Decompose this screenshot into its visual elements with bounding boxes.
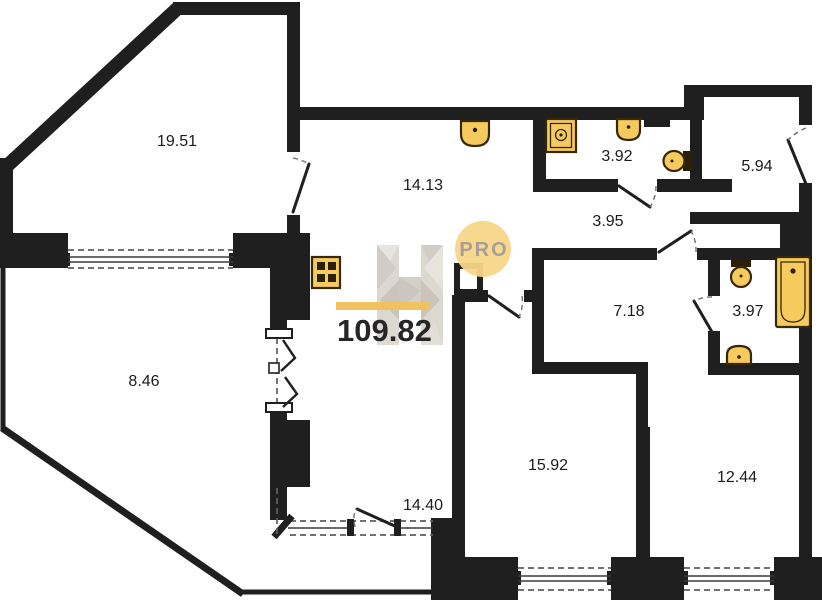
room-label-wc: 3.97 (732, 303, 763, 320)
window-bedroom (514, 568, 614, 590)
logo-underline (336, 302, 430, 310)
window-living-room (63, 250, 236, 268)
total-area-label: 109.82 (337, 313, 432, 348)
door-entrance (788, 128, 806, 184)
sink-2-icon (727, 346, 751, 364)
room-label-bedroom-2: 12.44 (717, 469, 757, 486)
kitchen-sink-icon (461, 121, 489, 146)
room-label-corridor: 7.18 (613, 303, 644, 320)
folding-door-terrace (266, 329, 297, 412)
door-wc (694, 297, 712, 332)
room-label-balcony: 14.40 (403, 497, 443, 514)
room-label-entrance: 5.94 (741, 158, 772, 175)
toilet-2-icon (731, 259, 751, 287)
door-bedroom (489, 296, 522, 317)
door-bathroom (619, 186, 656, 207)
washing-machine-icon (546, 119, 576, 152)
door-living-room (293, 158, 309, 212)
room-label-bathroom: 3.92 (601, 148, 632, 165)
toilet-icon (664, 151, 692, 171)
room-label-bedroom: 15.92 (528, 457, 568, 474)
room-label-terrace: 8.46 (128, 373, 159, 390)
door-corridor (659, 231, 696, 252)
sink-icon (617, 119, 640, 140)
room-label-kitchen: 14.13 (403, 177, 443, 194)
bathtub-icon (776, 257, 810, 327)
pro-badge-text: PRO (459, 239, 508, 261)
stove-icon (312, 257, 340, 288)
pro-badge: PRO (455, 221, 511, 277)
room-label-living-room: 19.51 (157, 133, 197, 150)
window-bedroom-2 (681, 568, 777, 590)
room-label-hallway: 3.95 (592, 213, 623, 230)
floor-plan: 109.82 PRO 19.51 14.13 3.92 3.95 5.94 7.… (0, 0, 822, 600)
door-balcony (354, 509, 397, 527)
